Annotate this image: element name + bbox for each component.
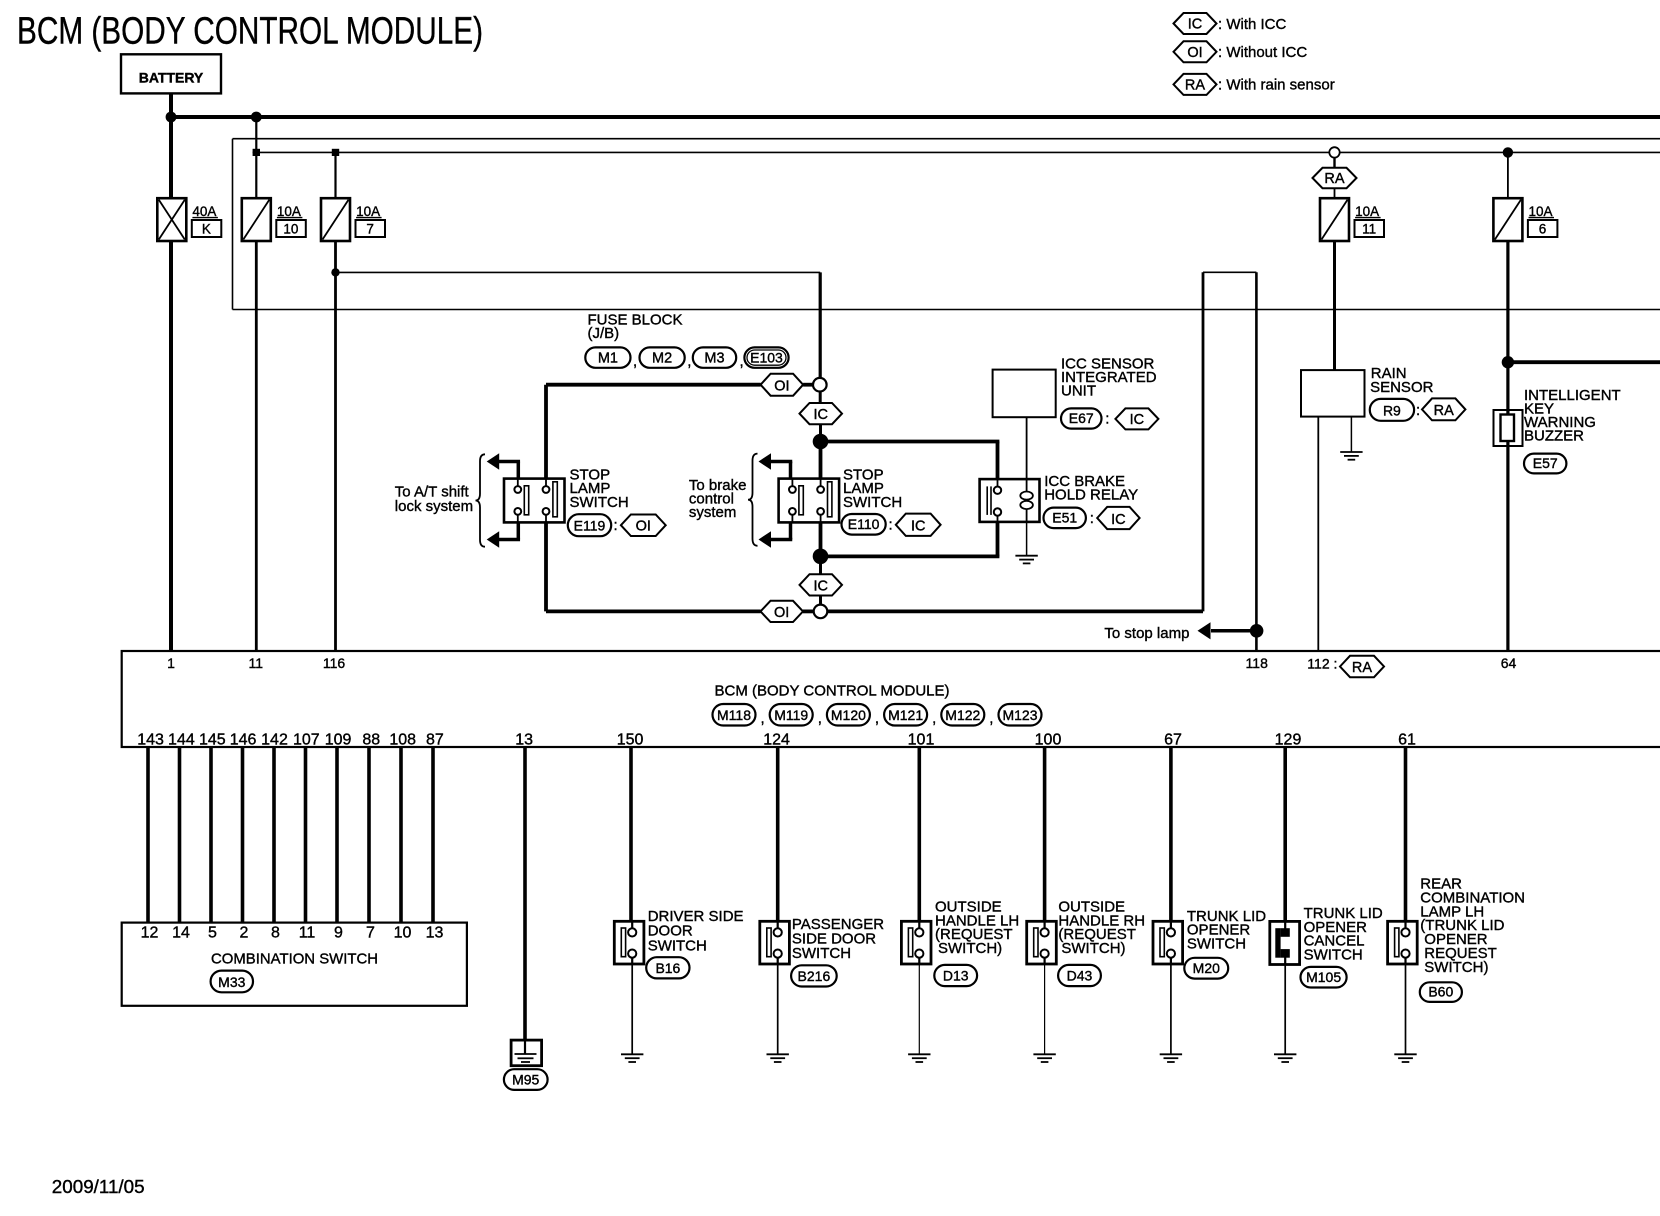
svg-text:B16: B16	[655, 960, 680, 976]
svg-text:M121: M121	[888, 707, 923, 723]
svg-text::: :	[614, 517, 618, 534]
svg-text:,: ,	[633, 353, 637, 370]
svg-text:11: 11	[1362, 222, 1376, 237]
svg-text:SWITCH: SWITCH	[792, 945, 851, 962]
svg-text:OI: OI	[774, 378, 789, 394]
svg-text:E103: E103	[750, 349, 783, 365]
svg-text:BCM (BODY CONTROL MODULE): BCM (BODY CONTROL MODULE)	[715, 683, 950, 700]
svg-text:107: 107	[293, 732, 320, 749]
svg-text:7: 7	[366, 925, 375, 942]
svg-text:144: 144	[168, 732, 195, 749]
svg-text:1: 1	[167, 655, 175, 671]
svg-text:,: ,	[687, 353, 691, 370]
svg-text:K: K	[202, 222, 211, 237]
svg-text:OI: OI	[774, 605, 789, 621]
svg-text:145: 145	[199, 732, 226, 749]
svg-text:SWITCH: SWITCH	[1187, 935, 1246, 952]
svg-text:: Without ICC: : Without ICC	[1218, 44, 1307, 61]
svg-text:12: 12	[141, 925, 159, 942]
svg-text:14: 14	[172, 925, 190, 942]
svg-text:HOLD RELAY: HOLD RELAY	[1044, 486, 1138, 503]
svg-text:109: 109	[325, 732, 352, 749]
svg-text:40A: 40A	[192, 204, 216, 219]
svg-text:E119: E119	[574, 518, 606, 534]
svg-text:RA: RA	[1324, 171, 1344, 187]
svg-text:D43: D43	[1067, 968, 1093, 984]
svg-text:RA: RA	[1434, 403, 1454, 419]
svg-text:5: 5	[208, 925, 217, 942]
svg-text:(J/B): (J/B)	[588, 325, 620, 342]
svg-text:BUZZER: BUZZER	[1524, 427, 1584, 444]
svg-text:system: system	[689, 504, 737, 521]
svg-text:,: ,	[875, 710, 879, 727]
svg-text:142: 142	[261, 732, 288, 749]
svg-text:101: 101	[908, 732, 935, 749]
svg-text:61: 61	[1398, 732, 1416, 749]
svg-text:E57: E57	[1533, 455, 1558, 471]
svg-text:SWITCH: SWITCH	[570, 494, 629, 511]
svg-text:11: 11	[299, 925, 316, 942]
svg-text:IC: IC	[813, 407, 828, 423]
svg-text:,: ,	[818, 710, 822, 727]
svg-text:RA: RA	[1352, 660, 1372, 676]
svg-text:8: 8	[271, 925, 280, 942]
svg-text:M105: M105	[1306, 969, 1341, 985]
svg-text:2: 2	[240, 925, 249, 942]
svg-text:E67: E67	[1069, 410, 1094, 426]
svg-text:B60: B60	[1428, 983, 1453, 999]
svg-text:SWITCH: SWITCH	[648, 938, 707, 955]
svg-text:143: 143	[137, 732, 164, 749]
svg-text:R9: R9	[1383, 402, 1401, 418]
svg-text:11: 11	[249, 655, 264, 671]
svg-text:BATTERY: BATTERY	[139, 70, 204, 86]
svg-text:IC: IC	[1130, 412, 1145, 428]
svg-text:100: 100	[1035, 732, 1062, 749]
svg-text:129: 129	[1275, 732, 1302, 749]
svg-text:7: 7	[366, 222, 374, 237]
svg-text:SWITCH): SWITCH)	[1424, 959, 1488, 976]
svg-text:IC: IC	[813, 578, 828, 594]
svg-text:108: 108	[389, 732, 416, 749]
svg-text:lock system: lock system	[395, 498, 473, 515]
svg-text:124: 124	[763, 732, 790, 749]
svg-text:,: ,	[989, 710, 993, 727]
svg-text:13: 13	[515, 732, 533, 749]
svg-text:OI: OI	[636, 519, 651, 535]
svg-text::: :	[1416, 402, 1420, 419]
svg-text:RA: RA	[1185, 78, 1205, 94]
svg-text:IC: IC	[1111, 512, 1126, 528]
svg-text:13: 13	[426, 925, 444, 942]
svg-text:SWITCH: SWITCH	[843, 494, 902, 511]
svg-text:SWITCH): SWITCH)	[938, 940, 1002, 957]
svg-text:10A: 10A	[1529, 204, 1553, 219]
svg-text:116: 116	[323, 655, 346, 671]
svg-text::: :	[1090, 510, 1094, 527]
svg-text:E110: E110	[848, 516, 880, 532]
svg-text::: :	[889, 517, 893, 534]
svg-text:87: 87	[426, 732, 444, 749]
svg-text:M2: M2	[652, 350, 672, 366]
svg-text:M20: M20	[1193, 960, 1220, 976]
svg-text:118: 118	[1246, 655, 1269, 671]
svg-text:10A: 10A	[356, 204, 380, 219]
svg-text:M122: M122	[945, 707, 980, 723]
svg-text:M3: M3	[704, 350, 724, 366]
svg-text:10A: 10A	[1355, 204, 1379, 219]
svg-text:To stop lamp: To stop lamp	[1104, 625, 1189, 642]
svg-text:64: 64	[1501, 655, 1517, 671]
svg-text:E51: E51	[1052, 510, 1077, 526]
svg-text:M123: M123	[1002, 707, 1037, 723]
svg-text:: With ICC: : With ICC	[1218, 16, 1287, 33]
svg-text:B216: B216	[798, 968, 831, 984]
svg-text::: :	[1105, 411, 1109, 428]
svg-text:D13: D13	[943, 968, 969, 984]
svg-text:10A: 10A	[277, 204, 301, 219]
svg-text:IC: IC	[911, 519, 926, 535]
svg-text:67: 67	[1164, 732, 1182, 749]
svg-text:88: 88	[362, 732, 380, 749]
svg-text:M120: M120	[831, 707, 866, 723]
svg-text:112 :: 112 :	[1307, 656, 1337, 672]
svg-text:SENSOR: SENSOR	[1370, 379, 1434, 396]
svg-text:M95: M95	[512, 1071, 539, 1087]
svg-text:M1: M1	[598, 350, 618, 366]
svg-text:M33: M33	[218, 974, 245, 990]
svg-text:,: ,	[761, 710, 765, 727]
svg-text:M119: M119	[774, 707, 808, 723]
svg-text:10: 10	[394, 925, 412, 942]
svg-text:9: 9	[334, 925, 343, 942]
svg-text:OI: OI	[1187, 45, 1202, 61]
svg-text:,: ,	[932, 710, 936, 727]
svg-text:150: 150	[617, 732, 644, 749]
svg-text:BCM (BODY CONTROL MODULE): BCM (BODY CONTROL MODULE)	[17, 11, 483, 53]
svg-text:146: 146	[230, 732, 257, 749]
svg-text:10: 10	[283, 222, 298, 237]
svg-text:UNIT: UNIT	[1061, 382, 1096, 399]
svg-text:M118: M118	[717, 707, 751, 723]
svg-text:SWITCH): SWITCH)	[1061, 940, 1125, 957]
svg-text:IC: IC	[1188, 17, 1203, 33]
svg-text:COMBINATION SWITCH: COMBINATION SWITCH	[211, 951, 378, 968]
svg-text:,: ,	[740, 353, 744, 370]
svg-text:: With rain sensor: : With rain sensor	[1218, 77, 1335, 94]
svg-text:SWITCH: SWITCH	[1304, 946, 1363, 963]
svg-text:6: 6	[1539, 222, 1547, 237]
svg-text:2009/11/05: 2009/11/05	[52, 1177, 145, 1197]
